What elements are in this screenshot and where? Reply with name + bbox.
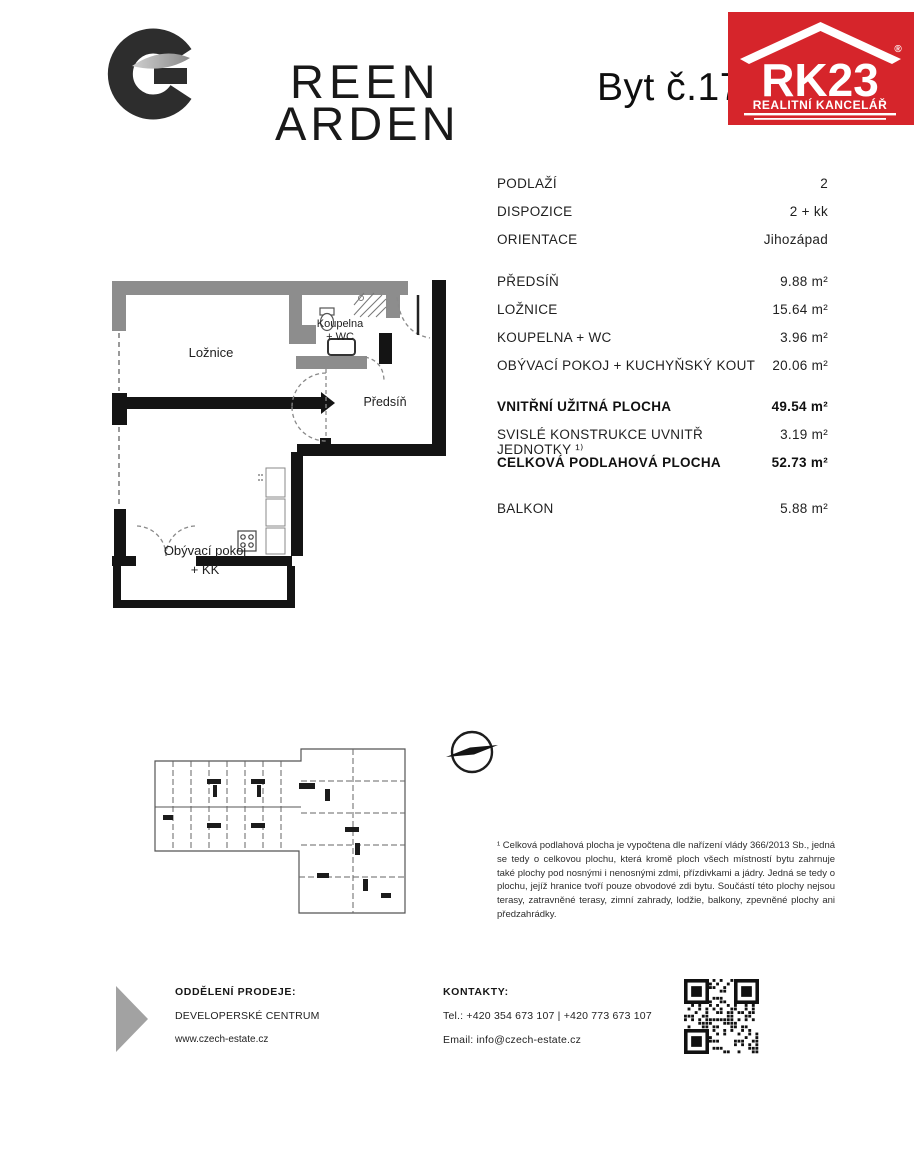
rk23-subtitle-text: REALITNÍ KANCELÁŘ — [753, 97, 888, 112]
room-label-living-2: + KK — [191, 562, 220, 577]
detail-row-koupelna: KOUPELNA + WC 3.96 m² — [497, 330, 828, 345]
room-label-bedroom: Ložnice — [189, 345, 234, 360]
detail-row-svisle-konstrukce: SVISLÉ KONSTRUKCE UVNITŘ JEDNOTKY ¹⁾ 3.1… — [497, 427, 828, 458]
brochure-page: REEN ARDEN Byt č.17 RK23 ® REALITNÍ KANC… — [0, 0, 921, 1151]
detail-row-orientace: ORIENTACE Jihozápad — [497, 232, 828, 247]
sales-department-label: ODDĚLENÍ PRODEJE: — [175, 986, 296, 998]
website-link[interactable]: www.czech-estate.cz — [175, 1034, 268, 1045]
room-label-bathroom-1: Koupelna — [317, 318, 364, 330]
logo-text-garden: ARDEN — [275, 100, 460, 147]
room-label-hallway: Předsíň — [363, 395, 406, 409]
contacts-label: KONTAKTY: — [443, 986, 509, 998]
green-garden-g-icon — [106, 24, 200, 122]
green-garden-logo: REEN ARDEN — [106, 24, 356, 120]
detail-row-uzitna-plocha: VNITŘNÍ UŽITNÁ PLOCHA 49.54 m² — [497, 399, 828, 414]
detail-row-loznice: LOŽNICE 15.64 m² — [497, 302, 828, 317]
detail-row-obyvaci: OBÝVACÍ POKOJ + KUCHYŇSKÝ KOUT 20.06 m² — [497, 358, 828, 373]
sales-department-name: DEVELOPERSKÉ CENTRUM — [175, 1010, 320, 1022]
compass-icon — [444, 722, 500, 780]
detail-row-predsin: PŘEDSÍŇ 9.88 m² — [497, 274, 828, 289]
footnote-text: ¹ Celková podlahová plocha je vypočtena … — [497, 839, 835, 922]
footer-triangle-icon — [116, 986, 150, 1054]
email-address[interactable]: Email: info@czech-estate.cz — [443, 1034, 581, 1046]
room-label-bathroom-2: + WC — [326, 331, 354, 343]
rk23-logo: RK23 ® REALITNÍ KANCELÁŘ — [728, 12, 914, 125]
apartment-floorplan: Ložnice Koupelna + WC Předsíň Obývací po… — [112, 277, 456, 613]
qr-code — [684, 979, 759, 1054]
phone-numbers: Tel.: +420 354 673 107 | +420 773 673 10… — [443, 1010, 652, 1022]
detail-row-balkon: BALKON 5.88 m² — [497, 501, 828, 516]
page-title: Byt č.17 — [597, 66, 742, 110]
floor-overview-plan — [149, 727, 423, 919]
detail-row-podlazi: PODLAŽÍ 2 — [497, 176, 828, 191]
detail-row-dispozice: DISPOZICE 2 + kk — [497, 204, 828, 219]
detail-row-podlahova-plocha: CELKOVÁ PODLAHOVÁ PLOCHA 52.73 m² — [497, 455, 828, 470]
registered-mark: ® — [894, 44, 902, 55]
rk23-logo-graphic: RK23 ® REALITNÍ KANCELÁŘ — [728, 12, 914, 125]
room-label-living-1: Obývací pokoj — [164, 543, 246, 558]
